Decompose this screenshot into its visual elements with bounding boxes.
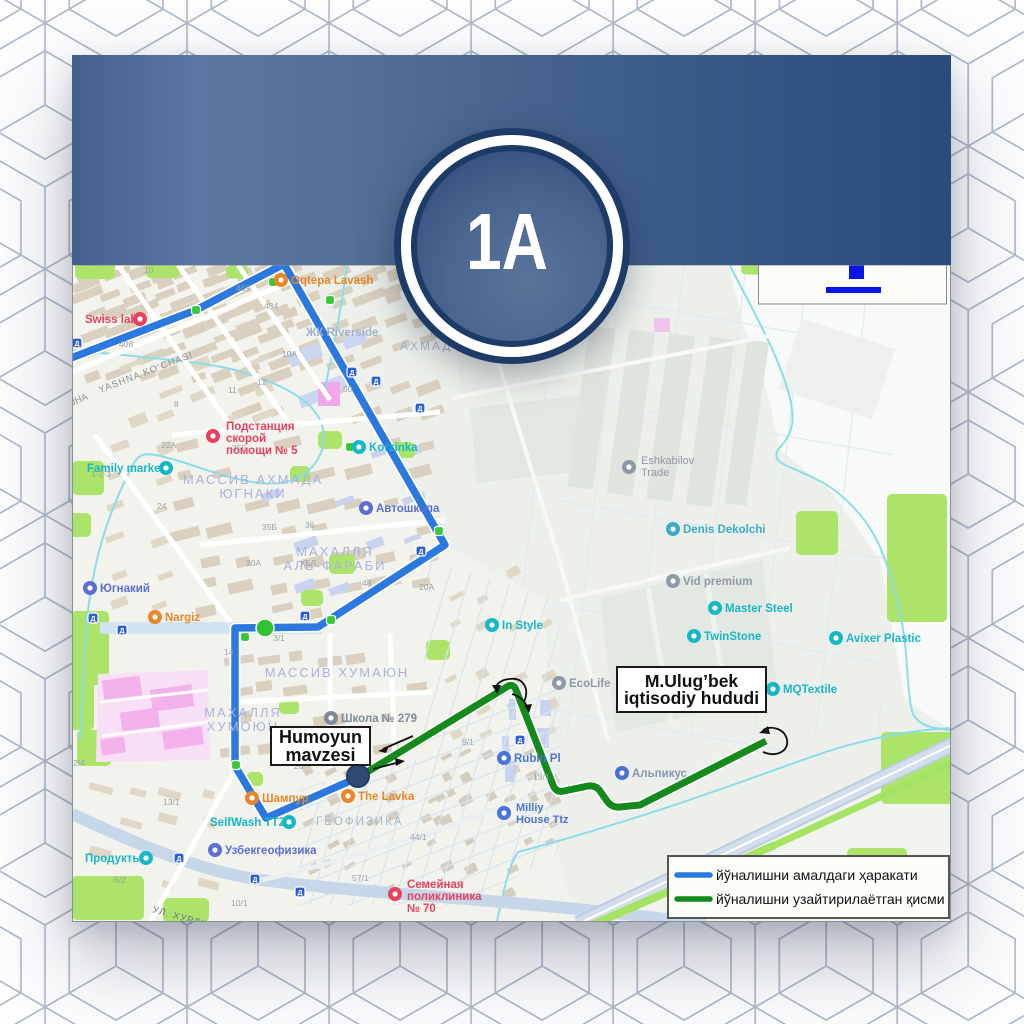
svg-text:57/1: 57/1 bbox=[352, 873, 369, 883]
svg-text:434: 434 bbox=[264, 301, 278, 311]
svg-text:TwinStone: TwinStone bbox=[704, 631, 761, 643]
svg-text:12: 12 bbox=[257, 377, 267, 387]
svg-text:14: 14 bbox=[224, 647, 234, 657]
svg-text:поликлиника: поликлиника bbox=[407, 891, 482, 903]
svg-text:АЛЬ-ФАРАБИ: АЛЬ-ФАРАБИ bbox=[284, 558, 387, 573]
svg-text:In Style: In Style bbox=[502, 620, 543, 632]
svg-text:9/1: 9/1 bbox=[462, 737, 474, 747]
svg-text:30А: 30А bbox=[246, 558, 261, 568]
svg-text:Д: Д bbox=[177, 856, 182, 863]
svg-text:йўналишни узайтирилаётган қисм: йўналишни узайтирилаётган қисми bbox=[716, 891, 945, 907]
svg-text:МАХАЛЛЯ: МАХАЛЛЯ bbox=[296, 544, 374, 559]
svg-text:10А: 10А bbox=[282, 349, 297, 359]
svg-text:22А: 22А bbox=[161, 440, 176, 450]
svg-text:Д: Д bbox=[75, 341, 80, 348]
svg-text:10/1: 10/1 bbox=[231, 898, 248, 908]
svg-text:10: 10 bbox=[144, 265, 154, 275]
svg-text:35Б: 35Б bbox=[262, 522, 277, 532]
svg-text:50: 50 bbox=[343, 384, 353, 394]
svg-text:Подстанция: Подстанция bbox=[226, 421, 295, 433]
svg-text:Альпикус: Альпикус bbox=[632, 768, 688, 780]
svg-text:8: 8 bbox=[174, 399, 179, 409]
svg-text:Д: Д bbox=[253, 877, 258, 884]
svg-text:The Lavka: The Lavka bbox=[358, 791, 415, 803]
svg-text:Trade: Trade bbox=[641, 467, 669, 479]
svg-text:48: 48 bbox=[362, 578, 372, 588]
svg-text:Д: Д bbox=[298, 890, 303, 897]
svg-text:Х5Л: Х5Л bbox=[300, 558, 316, 568]
svg-text:3/1: 3/1 bbox=[273, 633, 285, 643]
svg-text:Milliy: Milliy bbox=[516, 802, 544, 814]
svg-text:Д: Д bbox=[419, 549, 424, 556]
svg-text:Школа № 279: Школа № 279 bbox=[341, 713, 417, 725]
svg-text:1A: 1A bbox=[466, 197, 548, 286]
svg-text:ХУМОЮН: ХУМОЮН bbox=[207, 719, 279, 734]
svg-text:Swiss lab: Swiss lab bbox=[85, 314, 137, 326]
svg-text:Oqtepa Lavash: Oqtepa Lavash bbox=[291, 275, 373, 287]
svg-text:1-2-3: 1-2-3 bbox=[91, 469, 111, 479]
svg-text:ЮГНАКИ: ЮГНАКИ bbox=[219, 486, 286, 501]
svg-text:44/1: 44/1 bbox=[410, 832, 427, 842]
svg-text:Nargiz: Nargiz bbox=[165, 612, 200, 624]
svg-text:24: 24 bbox=[157, 501, 167, 511]
svg-text:iqtisodiy hududi: iqtisodiy hududi bbox=[624, 688, 759, 708]
svg-text:6/2: 6/2 bbox=[114, 875, 126, 885]
svg-text:Д: Д bbox=[120, 628, 125, 635]
svg-text:Шампур: Шампур bbox=[262, 793, 309, 805]
svg-text:20А: 20А bbox=[419, 582, 434, 592]
svg-text:Д: Д bbox=[350, 370, 355, 377]
svg-text:МАССИВ ХУМАЮН: МАССИВ ХУМАЮН bbox=[265, 665, 410, 680]
svg-text:Master Steel: Master Steel bbox=[725, 603, 793, 615]
svg-text:MQTextile: MQTextile bbox=[783, 684, 837, 696]
svg-text:EcoLife: EcoLife bbox=[569, 678, 611, 690]
svg-text:Denis Dekolchi: Denis Dekolchi bbox=[683, 524, 765, 536]
svg-text:Humoyun: Humoyun bbox=[279, 727, 362, 747]
svg-text:ЖК Riverside: ЖК Riverside bbox=[305, 327, 378, 339]
svg-text:Югнакий: Югнакий bbox=[100, 583, 150, 595]
svg-text:2/4: 2/4 bbox=[73, 758, 85, 768]
svg-text:Семейная: Семейная bbox=[407, 879, 464, 891]
svg-text:Д: Д bbox=[418, 406, 423, 413]
svg-text:Д: Д bbox=[374, 379, 379, 386]
svg-text:13/1: 13/1 bbox=[533, 772, 550, 782]
svg-text:МАССИВ АХМАДА: МАССИВ АХМАДА bbox=[183, 472, 323, 487]
svg-text:МАХАЛЛЯ: МАХАЛЛЯ bbox=[204, 705, 282, 720]
svg-text:Eshkabilov: Eshkabilov bbox=[641, 455, 695, 467]
svg-text:Д: Д bbox=[91, 616, 96, 623]
svg-text:469: 469 bbox=[236, 283, 250, 293]
svg-text:Korzinka: Korzinka bbox=[369, 442, 418, 454]
svg-text:Д: Д bbox=[518, 738, 523, 745]
svg-text:Узбекгеофизика: Узбекгеофизика bbox=[225, 845, 317, 857]
svg-text:№ 70: № 70 bbox=[407, 903, 436, 915]
svg-text:36: 36 bbox=[305, 520, 315, 530]
svg-text:SelfWash TTZ: SelfWash TTZ bbox=[210, 817, 286, 829]
svg-text:ГЕОФИЗИКА: ГЕОФИЗИКА bbox=[316, 816, 403, 828]
svg-text:13/1: 13/1 bbox=[163, 797, 180, 807]
svg-text:Д: Д bbox=[303, 614, 308, 621]
svg-text:House Ttz: House Ttz bbox=[516, 814, 569, 826]
svg-text:Avixer Plastic: Avixer Plastic bbox=[846, 633, 922, 645]
svg-text:Vid premium: Vid premium bbox=[683, 576, 752, 588]
svg-text:Rubin Pl: Rubin Pl bbox=[514, 753, 561, 765]
svg-text:Продукты: Продукты bbox=[85, 853, 142, 865]
svg-text:11: 11 bbox=[228, 385, 237, 395]
svg-text:йўналишни амалдаги ҳаракати: йўналишни амалдаги ҳаракати bbox=[716, 867, 918, 883]
svg-text:408: 408 bbox=[119, 339, 133, 349]
svg-text:355: 355 bbox=[232, 443, 246, 453]
svg-text:mavzesi: mavzesi bbox=[285, 745, 355, 765]
svg-text:Автошкола: Автошкола bbox=[376, 503, 440, 515]
